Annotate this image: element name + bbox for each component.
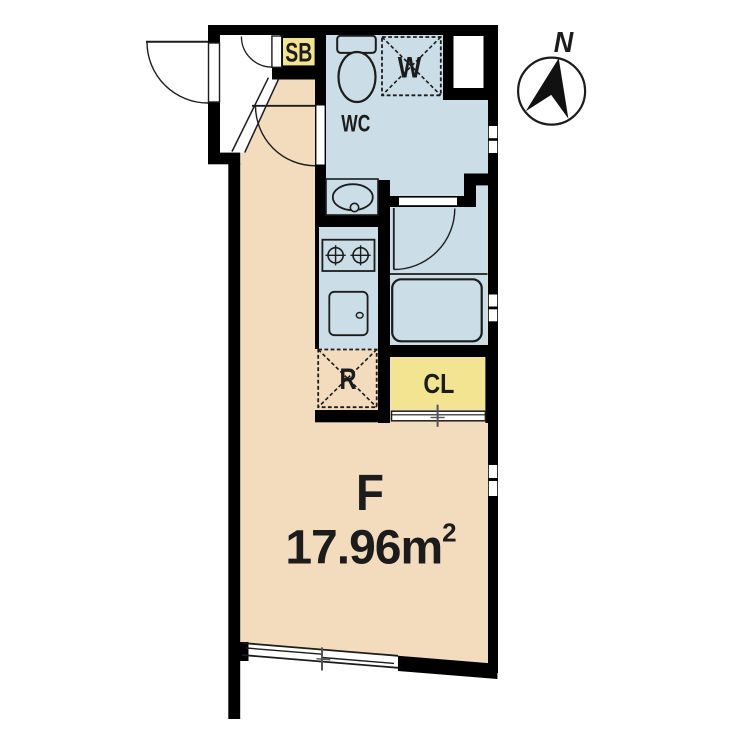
svg-text:17.96m2: 17.96m2 xyxy=(285,518,456,575)
svg-text:R: R xyxy=(340,363,357,396)
svg-text:CL: CL xyxy=(423,368,454,399)
svg-text:W: W xyxy=(398,51,422,84)
svg-text:F: F xyxy=(356,464,384,521)
svg-text:SB: SB xyxy=(285,37,312,67)
svg-text:WC: WC xyxy=(341,111,370,138)
svg-text:N: N xyxy=(554,27,574,59)
